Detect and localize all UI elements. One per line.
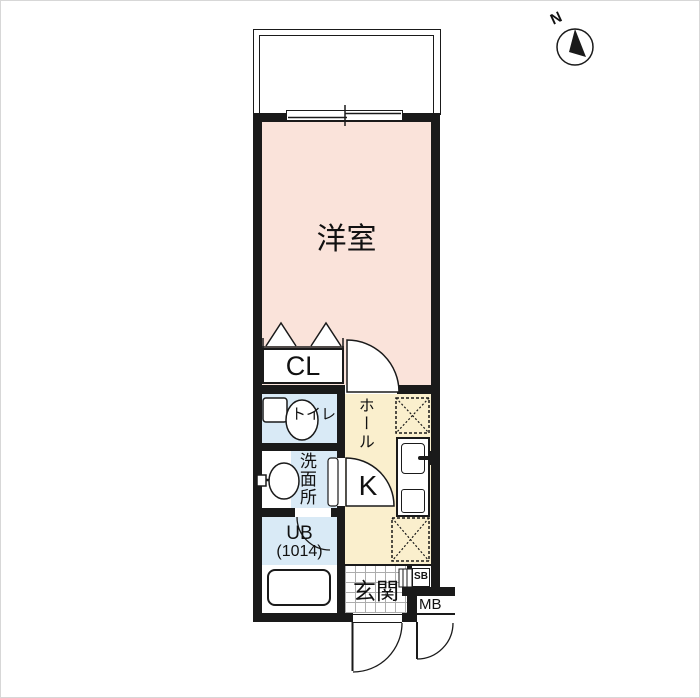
entrance-label: 玄関 [345, 577, 407, 605]
wall-left [253, 113, 262, 622]
washroom-label: 洗面所 [297, 452, 315, 510]
meter-box-label: MB [419, 596, 442, 613]
hall-label: ホール [355, 397, 372, 463]
toilet-label: トイレ [291, 407, 336, 423]
wall-entrance-step [345, 564, 431, 566]
floor-plan: 洋室 CL トイレ 洗面所 UB (1014) ホール K 玄関 SB MB N [0, 0, 700, 698]
kitchen-sink [401, 443, 425, 474]
wall-right [431, 113, 440, 590]
wall-toilet-washroom [253, 443, 345, 451]
window-frame [286, 110, 403, 121]
washroom-vanity-area [262, 451, 291, 508]
bath-label: UB (1014) [262, 519, 337, 565]
entrance-threshold [353, 614, 402, 623]
kitchen-label: K [348, 470, 388, 502]
wall-room-south-right [397, 385, 440, 394]
wall-room-south-left [253, 385, 345, 394]
meter-box-door-icon [417, 622, 453, 659]
entrance-door-icon [353, 622, 403, 672]
bathtub [267, 569, 331, 606]
wall-washroom-bath-left [253, 508, 295, 517]
north-compass-icon [557, 29, 593, 65]
western-room-label: 洋室 [262, 220, 431, 260]
shoe-box-label: SB [412, 568, 430, 587]
wall-inner-vertical-lower [337, 506, 345, 622]
closet-label: CL [262, 350, 344, 382]
compass-north-label: N [548, 9, 564, 28]
kitchen-stove [401, 489, 425, 513]
balcony-inner-line [259, 35, 434, 114]
wall-mb-left [407, 587, 417, 622]
mb-sill-line [417, 613, 455, 615]
wall-inner-vertical-upper [337, 385, 345, 458]
